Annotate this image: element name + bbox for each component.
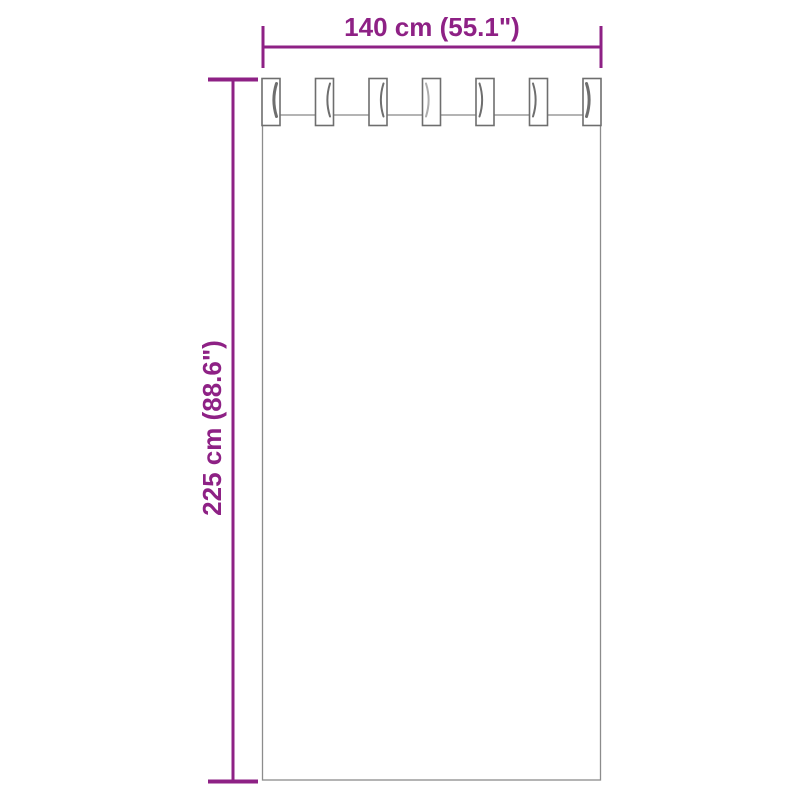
curtain-tab <box>530 79 548 126</box>
curtain-tab <box>369 79 387 126</box>
width-dimension: 140 cm (55.1") <box>263 12 601 68</box>
curtain-tab <box>476 79 494 126</box>
curtain-drawing <box>262 79 601 781</box>
curtain-tab <box>316 79 334 126</box>
product-dimension-diagram: 140 cm (55.1") 225 cm (88.6") <box>0 0 800 800</box>
curtain-tab <box>423 79 441 126</box>
curtain-panel <box>263 115 601 780</box>
height-dimension-label: 225 cm (88.6") <box>197 340 227 516</box>
height-dimension: 225 cm (88.6") <box>197 79 258 782</box>
width-dimension-label: 140 cm (55.1") <box>344 12 520 42</box>
curtain-diagram-svg: 140 cm (55.1") 225 cm (88.6") <box>0 0 800 800</box>
